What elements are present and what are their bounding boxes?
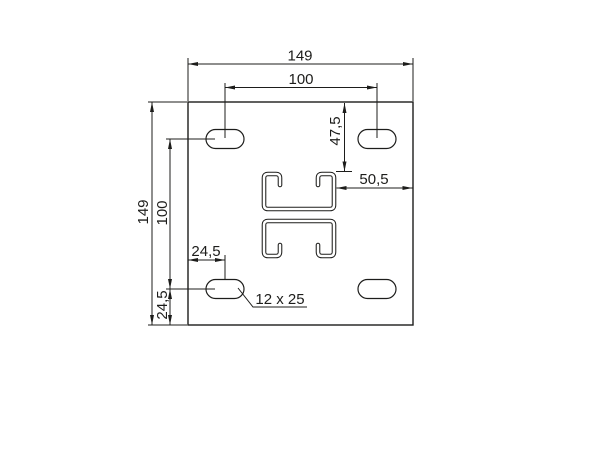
dim-label-profile-offset-right: 50,5	[359, 171, 388, 188]
slot-size-callout: 12 x 25	[238, 288, 307, 308]
dim-slot-spacing-left: 100	[154, 139, 215, 289]
strut-profile-bottom-inner	[264, 221, 334, 256]
strut-profile-cutout	[264, 174, 334, 256]
slot-bottom-right	[358, 280, 396, 299]
dim-label-slot-offset-left: 24,5	[191, 243, 220, 260]
strut-profile-bottom-outline	[264, 221, 334, 256]
drawing-svg: 149 100 47,5 50,5 149 100 24,5	[0, 0, 600, 450]
strut-profile-top-inner	[264, 174, 334, 209]
slot-size-label: 12 x 25	[255, 291, 304, 308]
dim-label-slot-spacing-h: 100	[288, 71, 313, 88]
dim-label-profile-offset-top: 47,5	[327, 116, 344, 145]
dim-slot-spacing-top: 100	[225, 71, 377, 138]
dim-label-slot-offset-bottom: 24,5	[154, 290, 171, 319]
dim-label-total-height: 149	[135, 199, 152, 224]
dim-label-total-width: 149	[287, 48, 312, 65]
technical-drawing-canvas: 149 100 47,5 50,5 149 100 24,5	[0, 0, 600, 450]
strut-profile-top-outline	[264, 174, 334, 209]
dim-slot-offset-left: 24,5	[188, 243, 225, 279]
dim-profile-offset-top: 47,5	[327, 103, 352, 172]
dim-slot-offset-bottom: 24,5	[154, 289, 171, 325]
dim-label-slot-spacing-v: 100	[154, 200, 171, 225]
dim-profile-offset-right: 50,5	[337, 171, 413, 188]
mounting-slots	[206, 130, 396, 299]
